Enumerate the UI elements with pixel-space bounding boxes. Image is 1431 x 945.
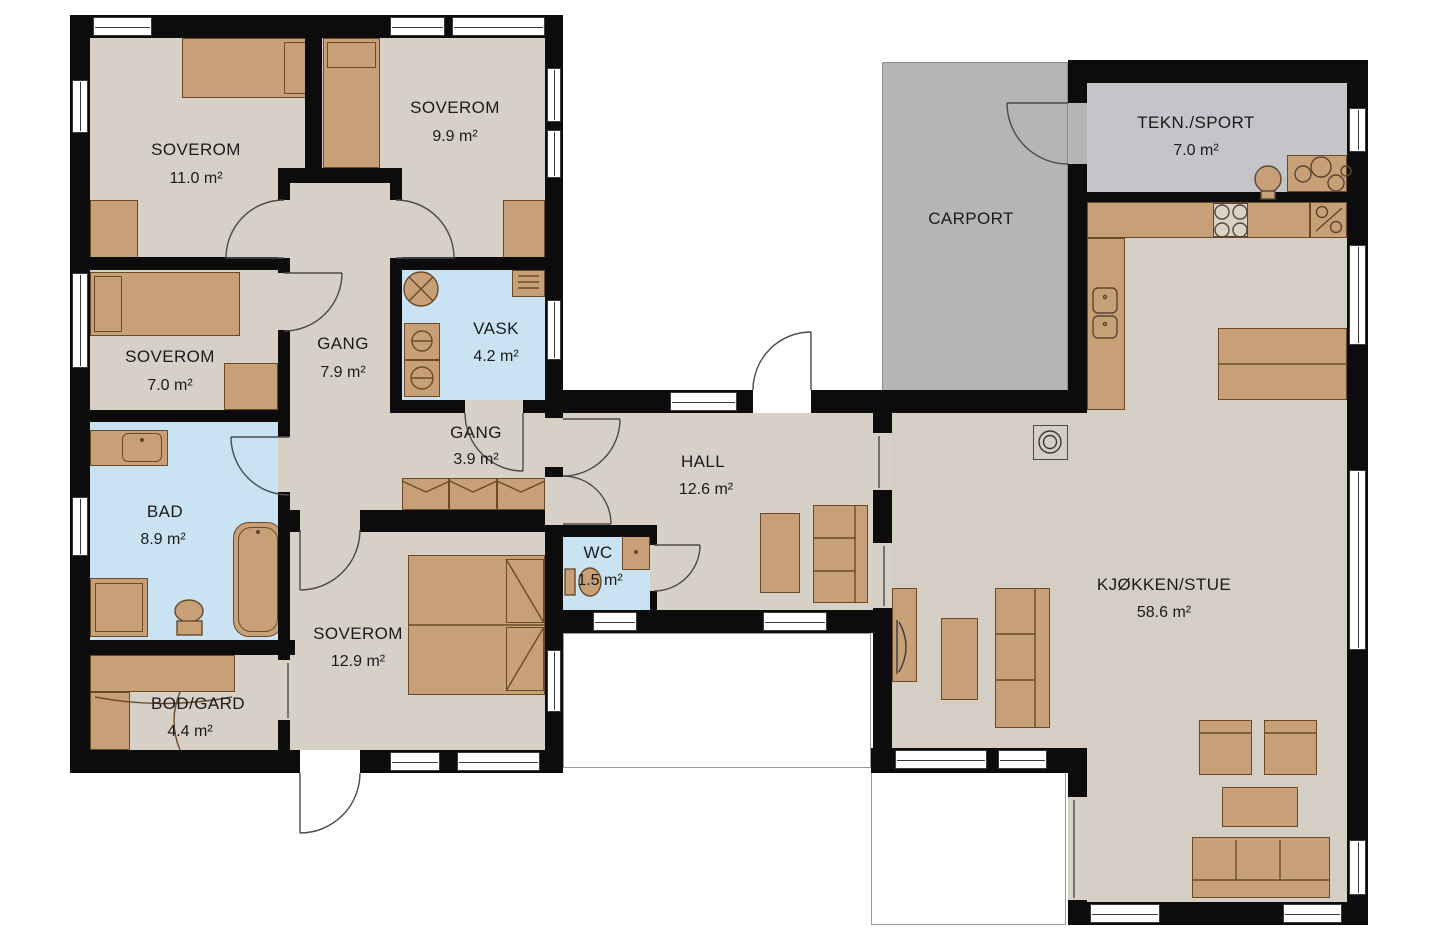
sofa-vertical: [995, 588, 1050, 728]
window: [593, 612, 637, 631]
wall: [90, 257, 278, 270]
room-area-gang-39: 3.9 m²: [453, 451, 498, 469]
room-area-tekn-sport: 7.0 m²: [1173, 142, 1218, 160]
tv-bench: [892, 588, 917, 682]
door-opening: [278, 200, 290, 258]
room-label-kjokken-stue: KJØKKEN/STUE: [1097, 575, 1231, 595]
wardrobe: [449, 478, 497, 510]
room-label-soverom-129: SOVEROM: [313, 624, 403, 644]
window: [72, 497, 88, 556]
room-label-tekn-sport: TEKN./SPORT: [1137, 113, 1254, 133]
room-label-wc: WC: [583, 543, 612, 563]
window: [1283, 904, 1342, 923]
window: [547, 68, 561, 122]
kitchen-counter-top: [1087, 202, 1310, 238]
hall-table: [760, 513, 800, 593]
room-area-soverom-7: 7.0 m²: [147, 377, 192, 395]
sideboard: [941, 618, 978, 700]
tekn-counter: [1287, 155, 1347, 192]
sofa-horizontal: [1192, 837, 1330, 898]
wall: [390, 257, 545, 270]
wall: [1087, 192, 1347, 202]
window: [670, 392, 737, 411]
storage-shelf: [90, 655, 235, 692]
dining-table: [1218, 328, 1347, 400]
door-opening-exterior: [300, 750, 360, 773]
room-label-gang-79: GANG: [317, 334, 369, 354]
wardrobe: [224, 363, 278, 410]
window: [547, 650, 561, 712]
storage-shelf: [90, 692, 130, 750]
wardrobe: [503, 200, 545, 258]
wall: [70, 640, 295, 655]
wall: [873, 633, 892, 750]
room-area-vask: 4.2 m²: [473, 348, 518, 366]
room-area-bad: 8.9 m²: [140, 531, 185, 549]
dryer: [404, 360, 440, 397]
window: [998, 750, 1047, 769]
room-label-vask: VASK: [473, 319, 519, 339]
room-area-soverom-129: 12.9 m²: [331, 653, 385, 671]
armchair: [1199, 720, 1252, 775]
room-area-soverom-11: 11.0 m²: [169, 170, 222, 188]
bed-pillow: [506, 627, 544, 691]
window: [390, 17, 445, 36]
armchair: [1264, 720, 1317, 775]
window: [547, 300, 561, 360]
door-opening-entrance: [753, 390, 811, 413]
bed-pillow: [327, 42, 376, 68]
window: [1349, 245, 1366, 345]
room-area-wc: 1.5 m²: [577, 572, 622, 590]
window: [390, 752, 440, 771]
room-label-hall: HALL: [681, 452, 725, 472]
door-opening: [278, 437, 290, 492]
door-opening: [650, 545, 657, 591]
laundry-shelf: [512, 270, 545, 297]
door-opening: [545, 418, 563, 467]
door-opening: [545, 477, 563, 525]
washing-machine: [404, 323, 440, 360]
window: [1090, 904, 1160, 923]
hall-bench: [813, 505, 868, 603]
window: [763, 612, 827, 631]
chimney: [1033, 425, 1068, 460]
shower-inner: [95, 583, 143, 632]
door-opening-carport: [1068, 103, 1087, 164]
wardrobe: [402, 478, 449, 510]
window: [895, 750, 987, 769]
fridge-freezer: [1310, 202, 1347, 238]
bed-pillow: [94, 276, 122, 332]
room-label-soverom-7: SOVEROM: [125, 347, 215, 367]
room-area-kjokken-stue: 58.6 m²: [1137, 604, 1191, 622]
coffee-table: [1222, 787, 1298, 827]
window: [72, 80, 88, 133]
bathtub-inner: [238, 527, 278, 632]
door-opening: [278, 273, 290, 330]
wall: [305, 38, 322, 170]
sliding-door-opening: [873, 543, 892, 608]
door-opening: [465, 400, 523, 413]
window: [1349, 108, 1366, 152]
room-label-bad: BAD: [147, 502, 183, 522]
window: [1349, 470, 1366, 650]
window: [547, 130, 561, 178]
room-label-soverom-99: SOVEROM: [410, 98, 500, 118]
stove: [1213, 203, 1248, 237]
terrace-south: [871, 768, 1066, 925]
window: [1349, 840, 1366, 895]
sliding-door-opening: [1068, 797, 1087, 900]
window: [72, 273, 88, 368]
wall: [563, 390, 1087, 413]
door-opening: [300, 510, 360, 532]
room-area-hall: 12.6 m²: [679, 481, 733, 499]
wardrobe: [497, 478, 545, 510]
bed-pillow: [506, 559, 544, 623]
room-area-gang-79: 7.9 m²: [320, 364, 365, 382]
wall: [70, 410, 290, 422]
room-label-gang-39: GANG: [450, 423, 502, 443]
wall: [278, 168, 402, 183]
door-opening: [390, 200, 402, 258]
kitchen-counter-left: [1087, 238, 1125, 410]
window: [93, 17, 152, 36]
floor-living-west: [892, 413, 1087, 748]
wall: [1068, 60, 1368, 83]
room-label-bod-gard: BOD/GARD: [151, 694, 245, 714]
room-area-soverom-99: 9.9 m²: [432, 128, 477, 146]
vanity-sink: [122, 433, 162, 462]
wall: [563, 525, 657, 537]
window: [452, 17, 545, 36]
sliding-door-opening: [873, 433, 892, 490]
bed-small: [90, 200, 138, 258]
floor-plan: SOVEROM 11.0 m² SOVEROM 9.9 m² SOVEROM 7…: [0, 0, 1431, 945]
sliding-door-opening: [278, 660, 295, 720]
wc-sink: [622, 535, 650, 570]
terrace-west: [563, 633, 871, 768]
room-label-carport: CARPORT: [928, 209, 1014, 229]
window: [457, 752, 540, 771]
room-label-soverom-11: SOVEROM: [151, 140, 241, 160]
room-area-bod-gard: 4.4 m²: [167, 723, 212, 741]
